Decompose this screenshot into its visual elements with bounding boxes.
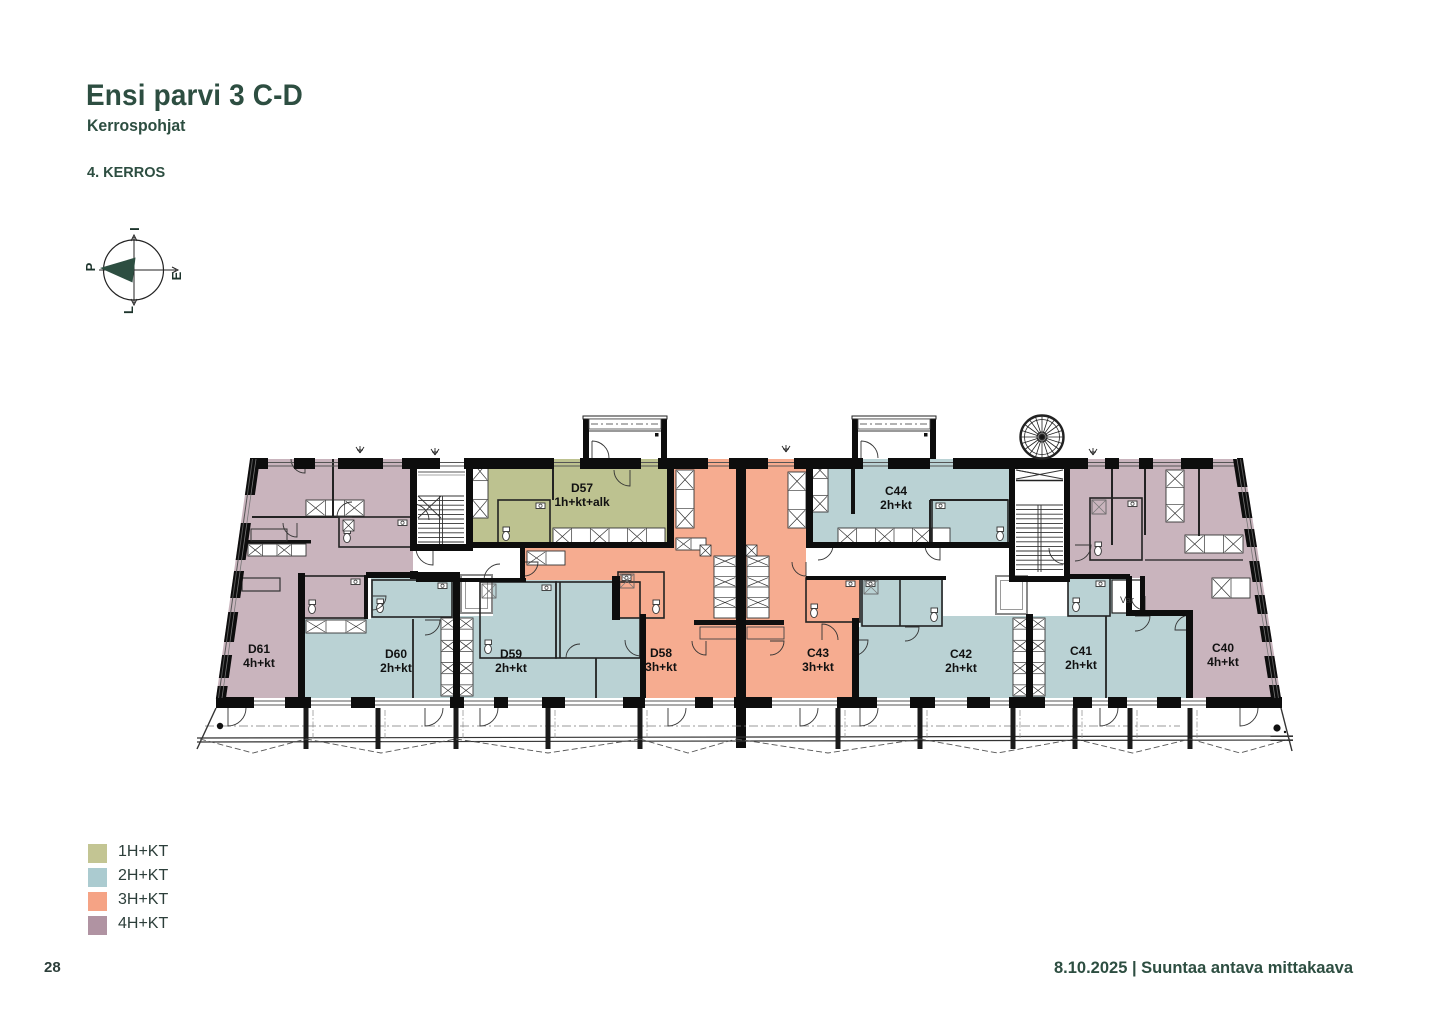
svg-text:D59: D59 [500, 647, 522, 661]
svg-text:4h+kt: 4h+kt [1207, 655, 1239, 669]
svg-text:D57: D57 [571, 481, 593, 495]
svg-text:3h+kt: 3h+kt [802, 660, 834, 674]
svg-text:3h+kt: 3h+kt [645, 660, 677, 674]
svg-text:P: P [83, 262, 98, 271]
svg-text:C44: C44 [885, 484, 907, 498]
svg-text:E: E [169, 271, 184, 280]
svg-text:C40: C40 [1212, 641, 1234, 655]
svg-text:2h+kt: 2h+kt [495, 661, 527, 675]
svg-text:D58: D58 [650, 646, 672, 660]
svg-text:I: I [127, 227, 142, 231]
svg-text:C42: C42 [950, 647, 972, 661]
svg-text:D60: D60 [385, 647, 407, 661]
svg-text:Var: Var [1120, 595, 1134, 606]
svg-text:2h+kt: 2h+kt [380, 661, 412, 675]
svg-text:4h+kt: 4h+kt [243, 656, 275, 670]
svg-text:C43: C43 [807, 646, 829, 660]
svg-text:1h+kt+alk: 1h+kt+alk [554, 495, 610, 509]
svg-text:2h+kt: 2h+kt [880, 498, 912, 512]
svg-text:C41: C41 [1070, 644, 1092, 658]
svg-text:2h+kt: 2h+kt [945, 661, 977, 675]
svg-text:2h+kt: 2h+kt [1065, 658, 1097, 672]
svg-text:D61: D61 [248, 642, 270, 656]
svg-text:L: L [121, 306, 136, 314]
